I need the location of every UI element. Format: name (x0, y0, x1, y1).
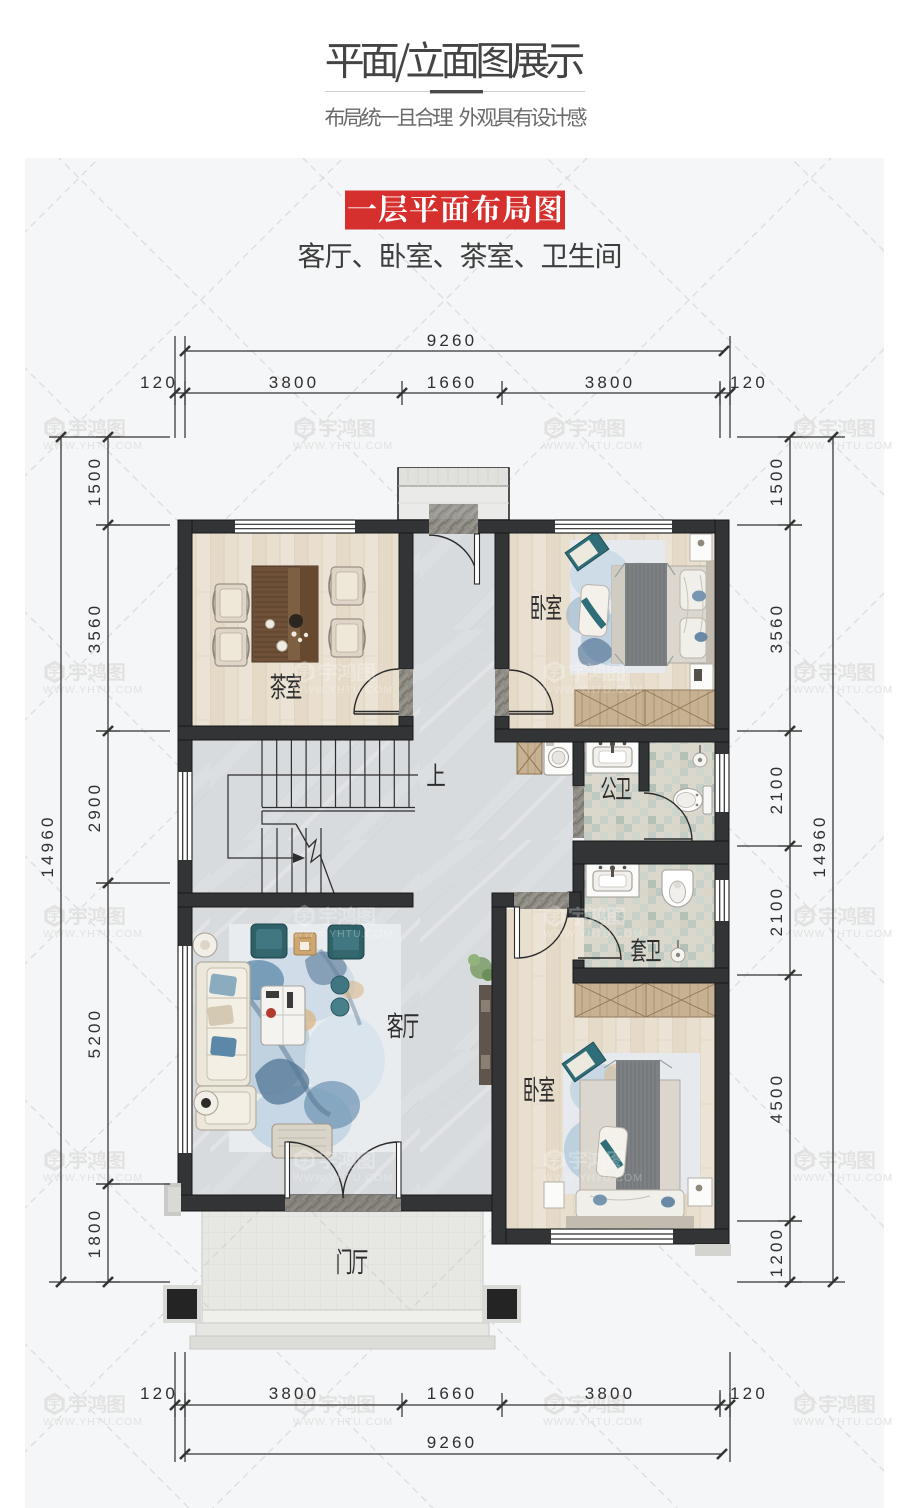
svg-text:WWW.YHTU.COM: WWW.YHTU.COM (543, 1172, 643, 1184)
svg-text:WWW.YHTU.COM: WWW.YHTU.COM (293, 684, 393, 696)
svg-text:1800: 1800 (85, 1208, 104, 1259)
svg-text:3560: 3560 (85, 603, 104, 654)
svg-text:WWW.YHTU.COM: WWW.YHTU.COM (43, 1416, 143, 1428)
svg-text:5200: 5200 (85, 1008, 104, 1059)
svg-text:2100: 2100 (767, 764, 786, 815)
svg-text:1660: 1660 (427, 1384, 478, 1403)
svg-text:WWW.YHTU.COM: WWW.YHTU.COM (543, 1416, 643, 1428)
svg-text:3800: 3800 (269, 373, 320, 392)
svg-text:14960: 14960 (38, 814, 57, 877)
svg-text:2100: 2100 (767, 886, 786, 937)
svg-text:1500: 1500 (767, 456, 786, 507)
svg-text:WWW.YHTU.COM: WWW.YHTU.COM (793, 1172, 893, 1184)
svg-text:3800: 3800 (269, 1384, 320, 1403)
svg-text:3560: 3560 (767, 603, 786, 654)
svg-text:WWW.YHTU.COM: WWW.YHTU.COM (543, 684, 643, 696)
svg-text:120: 120 (730, 1384, 768, 1403)
svg-text:1500: 1500 (85, 456, 104, 507)
svg-text:WWW.YHTU.COM: WWW.YHTU.COM (543, 440, 643, 452)
svg-text:1660: 1660 (427, 373, 478, 392)
svg-text:120: 120 (140, 373, 178, 392)
svg-text:2900: 2900 (85, 782, 104, 833)
svg-text:WWW.YHTU.COM: WWW.YHTU.COM (293, 928, 393, 940)
svg-text:9260: 9260 (427, 331, 478, 350)
svg-text:9260: 9260 (427, 1433, 478, 1452)
svg-text:WWW.YHTU.COM: WWW.YHTU.COM (293, 1172, 393, 1184)
svg-text:WWW.YHTU.COM: WWW.YHTU.COM (43, 1172, 143, 1184)
svg-text:WWW.YHTU.COM: WWW.YHTU.COM (793, 684, 893, 696)
svg-text:4500: 4500 (767, 1073, 786, 1124)
svg-text:WWW.YHTU.COM: WWW.YHTU.COM (793, 440, 893, 452)
svg-text:WWW.YHTU.COM: WWW.YHTU.COM (543, 928, 643, 940)
svg-text:WWW.YHTU.COM: WWW.YHTU.COM (793, 1416, 893, 1428)
svg-text:WWW.YHTU.COM: WWW.YHTU.COM (43, 684, 143, 696)
svg-text:WWW.YHTU.COM: WWW.YHTU.COM (793, 928, 893, 940)
svg-text:WWW.YHTU.COM: WWW.YHTU.COM (293, 440, 393, 452)
svg-text:3800: 3800 (585, 373, 636, 392)
svg-text:14960: 14960 (810, 814, 829, 877)
svg-text:3800: 3800 (585, 1384, 636, 1403)
svg-text:1200: 1200 (767, 1227, 786, 1278)
svg-text:120: 120 (140, 1384, 178, 1403)
svg-text:WWW.YHTU.COM: WWW.YHTU.COM (43, 928, 143, 940)
svg-text:120: 120 (730, 373, 768, 392)
svg-text:WWW.YHTU.COM: WWW.YHTU.COM (293, 1416, 393, 1428)
